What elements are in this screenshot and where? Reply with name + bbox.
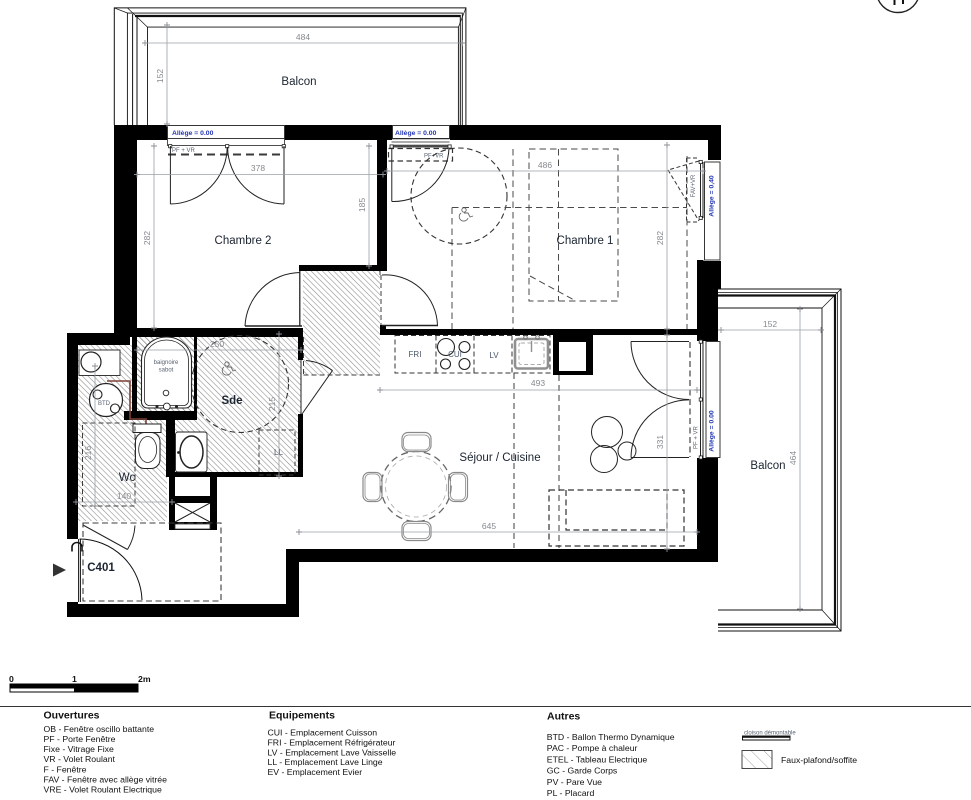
svg-text:2m: 2m — [138, 674, 151, 684]
svg-text:493: 493 — [531, 378, 545, 388]
svg-text:Fixe - Vitrage Fixe: Fixe - Vitrage Fixe — [44, 744, 114, 754]
svg-text:Allège = 0.00: Allège = 0.00 — [395, 130, 437, 137]
svg-text:VR - Volet Roulant: VR - Volet Roulant — [44, 754, 116, 764]
svg-text:Balcon: Balcon — [281, 76, 316, 88]
svg-text:Chambre 2: Chambre 2 — [215, 235, 272, 247]
svg-text:FRI: FRI — [409, 350, 422, 359]
svg-text:Allège = 0.00: Allège = 0.00 — [172, 130, 214, 137]
svg-text:PAC - Pompe à chaleur: PAC - Pompe à chaleur — [547, 743, 638, 753]
svg-text:F - Fenêtre: F - Fenêtre — [44, 764, 87, 774]
svg-text:GC - Garde Corps: GC - Garde Corps — [547, 766, 618, 776]
svg-text:LV: LV — [489, 351, 499, 360]
svg-text:FAV - Fenêtre avec allège vitr: FAV - Fenêtre avec allège vitrée — [44, 774, 168, 784]
svg-text:PF + VR: PF + VR — [172, 148, 196, 154]
svg-text:CUI - Emplacement Cuisson: CUI - Emplacement Cuisson — [268, 728, 378, 738]
svg-text:Séjour / Cuisine: Séjour / Cuisine — [459, 452, 540, 464]
svg-text:140: 140 — [117, 491, 131, 501]
svg-text:Allège = 0.00: Allège = 0.00 — [709, 410, 716, 452]
svg-text:Equipements: Equipements — [269, 710, 335, 722]
svg-text:215: 215 — [267, 397, 277, 411]
svg-text:152: 152 — [763, 319, 777, 329]
svg-text:282: 282 — [142, 231, 152, 245]
svg-text:VRE - Volet Roulant Electrique: VRE - Volet Roulant Electrique — [44, 785, 162, 795]
svg-text:Wc: Wc — [119, 472, 136, 484]
svg-text:baignoire: baignoire — [154, 360, 179, 366]
svg-text:331: 331 — [655, 435, 665, 449]
svg-text:645: 645 — [482, 521, 496, 531]
svg-text:Balcon: Balcon — [750, 460, 785, 472]
svg-text:EV - Emplacement Evier: EV - Emplacement Evier — [268, 767, 363, 777]
svg-text:Ouvertures: Ouvertures — [44, 710, 100, 722]
svg-text:LV - Emplacement Lave Vaissell: LV - Emplacement Lave Vaisselle — [268, 747, 397, 757]
svg-text:185: 185 — [357, 198, 367, 212]
svg-text:378: 378 — [251, 163, 265, 173]
svg-text:BTD: BTD — [98, 401, 111, 407]
svg-text:Sde: Sde — [221, 395, 242, 407]
svg-text:250: 250 — [210, 339, 224, 349]
svg-text:486: 486 — [538, 160, 552, 170]
svg-text:484: 484 — [296, 32, 310, 42]
svg-text:282: 282 — [655, 231, 665, 245]
svg-text:OB - Fenêtre oscillo battante: OB - Fenêtre oscillo battante — [44, 724, 155, 734]
svg-text:0: 0 — [9, 674, 14, 684]
svg-text:464: 464 — [788, 451, 798, 465]
svg-text:PL - Placard: PL - Placard — [547, 788, 595, 798]
svg-text:C401: C401 — [87, 562, 115, 574]
svg-text:Chambre 1: Chambre 1 — [557, 235, 614, 247]
svg-text:FAV+VR: FAV+VR — [691, 174, 697, 197]
svg-text:Allège = 0,40: Allège = 0,40 — [709, 175, 716, 217]
svg-text:BTD - Ballon Thermo Dynamique: BTD - Ballon Thermo Dynamique — [547, 732, 675, 742]
svg-text:sabot: sabot — [159, 368, 174, 374]
svg-text:Faux-plafond/soffite: Faux-plafond/soffite — [781, 755, 857, 765]
svg-text:PF - Porte Fenêtre: PF - Porte Fenêtre — [44, 734, 116, 744]
svg-text:LL - Emplacement Lave Linge: LL - Emplacement Lave Linge — [268, 757, 383, 767]
svg-text:FRI - Emplacement Réfrigérateu: FRI - Emplacement Réfrigérateur — [268, 737, 396, 747]
svg-text:CUI: CUI — [448, 350, 462, 359]
svg-text:PF + VR: PF + VR — [694, 425, 700, 449]
svg-text:ETEL - Tableau Electrique: ETEL - Tableau Electrique — [547, 754, 648, 764]
svg-text:PV - Pare Vue: PV - Pare Vue — [547, 777, 602, 787]
svg-text:1: 1 — [72, 674, 77, 684]
svg-text:Autres: Autres — [547, 711, 580, 723]
svg-text:216: 216 — [83, 446, 93, 460]
svg-text:152: 152 — [155, 69, 165, 83]
